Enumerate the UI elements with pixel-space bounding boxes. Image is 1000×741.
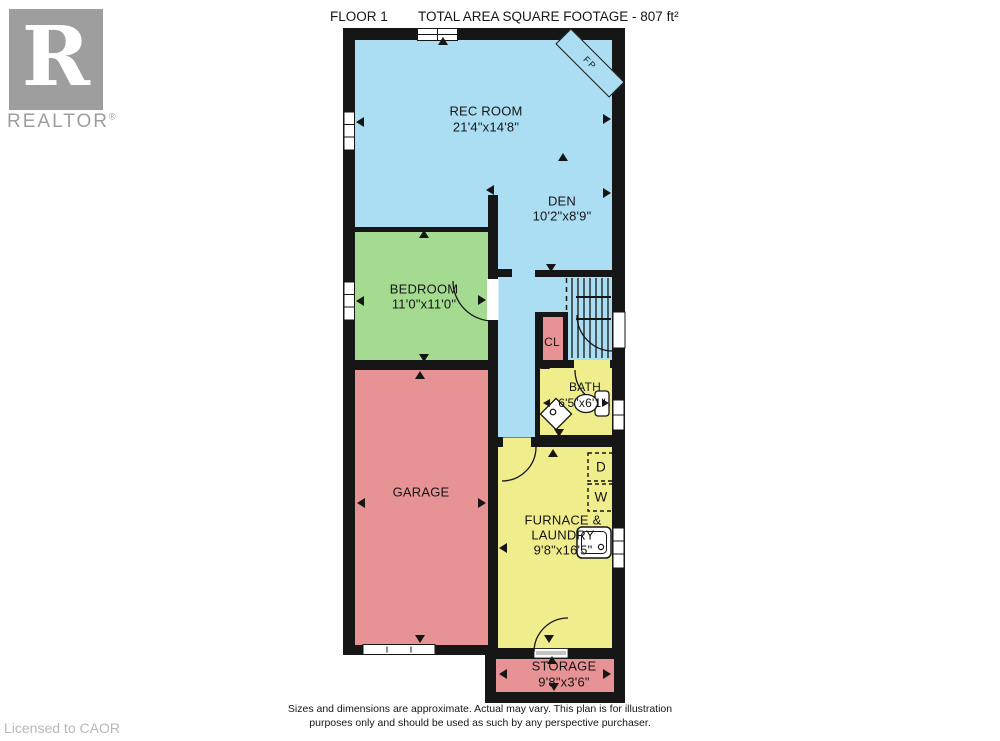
den-dims: 10'2"x8'9" <box>533 210 592 223</box>
room-stairwell <box>568 277 612 360</box>
realtor-logo-letter: R <box>22 16 90 98</box>
closet-label: CL <box>544 336 560 348</box>
bath-dims: 6'5"x6'1" <box>558 397 606 409</box>
floor-label: FLOOR 1 <box>330 9 388 24</box>
license-text: Licensed to CAOR <box>4 720 120 736</box>
room-hallway <box>498 270 535 437</box>
den-label: DEN <box>548 195 576 208</box>
dryer-label: D <box>596 460 606 474</box>
realtor-logo: R <box>9 9 103 110</box>
floor-plan-page: FLOOR 1 TOTAL AREA SQUARE FOOTAGE - 807 … <box>0 0 1000 741</box>
total-area-label: TOTAL AREA SQUARE FOOTAGE - 807 ft² <box>418 9 679 24</box>
rec-room-dims: 21'4"x14'8" <box>453 121 519 134</box>
registered-mark: ® <box>109 112 118 122</box>
disclaimer-line-2: purposes only and should be used as such… <box>288 717 672 731</box>
garage-label: GARAGE <box>393 486 450 499</box>
bedroom-label: BEDROOM <box>390 283 459 296</box>
bath-label: BATH <box>569 381 601 393</box>
bedroom-dims: 11'0"x11'0" <box>392 298 456 311</box>
rec-room-label: REC ROOM <box>449 105 522 118</box>
room-rec-room-lower <box>355 195 488 227</box>
disclaimer: Sizes and dimensions are approximate. Ac… <box>288 703 672 730</box>
wall-stub-den <box>498 269 512 277</box>
washer-label: W <box>595 490 608 504</box>
fireplace-label: FP <box>581 54 598 71</box>
realtor-wordmark: REALTOR® <box>7 111 118 133</box>
disclaimer-line-1: Sizes and dimensions are approximate. Ac… <box>288 703 672 717</box>
furnace-laundry-dims: 9'8"x16'5" <box>534 544 593 557</box>
furnace-laundry-label-2: LAUNDRY <box>531 529 594 542</box>
room-landing <box>535 277 568 312</box>
furnace-laundry-label-1: FURNACE & <box>525 514 602 527</box>
storage-label: STORAGE <box>532 660 597 673</box>
storage-dims: 9'8"x3'6" <box>538 676 589 689</box>
room-garage <box>355 370 488 645</box>
